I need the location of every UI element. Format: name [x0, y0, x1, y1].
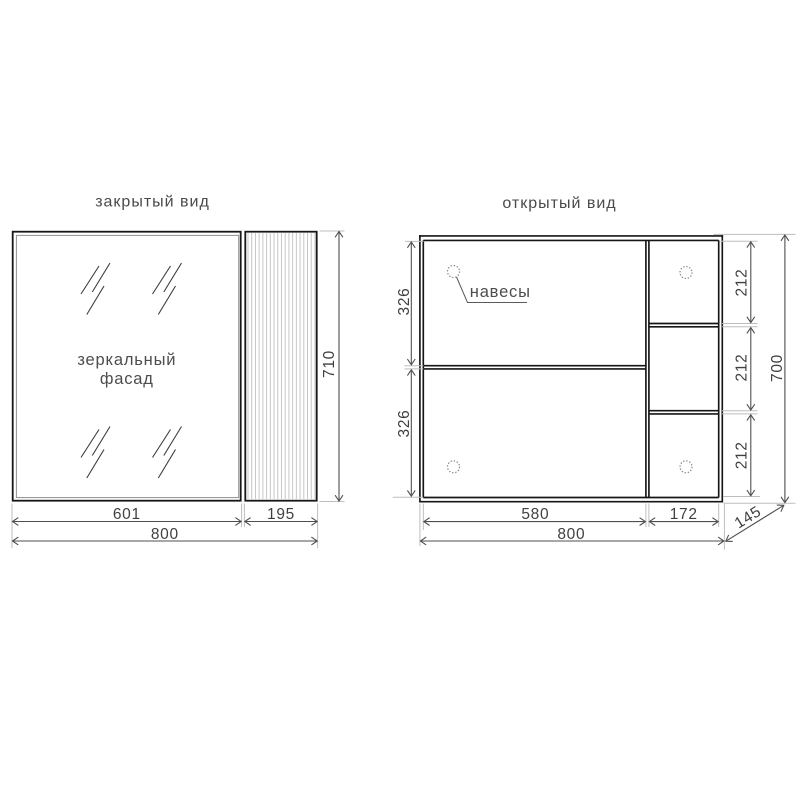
svg-text:212: 212 [734, 441, 751, 469]
svg-text:326: 326 [396, 410, 413, 438]
svg-text:601: 601 [113, 506, 141, 523]
svg-text:зеркальный: зеркальный [77, 351, 176, 369]
svg-text:800: 800 [151, 526, 179, 543]
svg-text:открытый вид: открытый вид [502, 195, 616, 212]
svg-text:212: 212 [734, 354, 751, 382]
svg-text:700: 700 [769, 354, 786, 382]
svg-text:195: 195 [267, 506, 295, 523]
svg-text:212: 212 [734, 269, 751, 297]
svg-text:закрытый вид: закрытый вид [95, 193, 210, 210]
svg-text:172: 172 [670, 506, 698, 523]
svg-text:фасад: фасад [100, 370, 154, 388]
svg-text:580: 580 [521, 506, 549, 523]
svg-text:800: 800 [557, 526, 585, 543]
svg-text:326: 326 [396, 288, 413, 316]
svg-text:навесы: навесы [470, 283, 531, 301]
svg-text:710: 710 [321, 350, 338, 378]
